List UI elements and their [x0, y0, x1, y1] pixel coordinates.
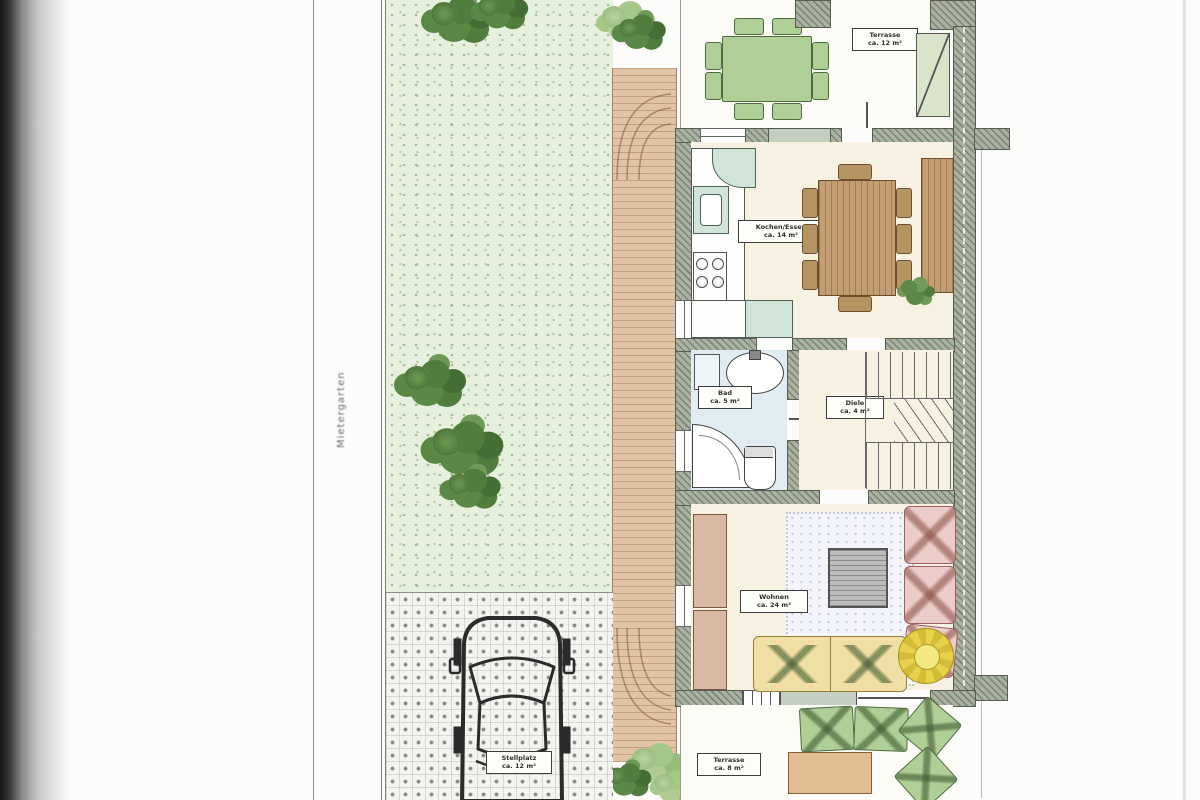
stair-winders: [894, 398, 954, 442]
tap-icon: [749, 350, 761, 360]
garden-bench: [916, 33, 950, 117]
lower-terrace-label: Terrasse ca. 8 m²: [697, 753, 761, 776]
dining-chair: [896, 188, 912, 218]
terrace-table: [788, 752, 872, 794]
stove-icon: [693, 252, 727, 306]
terrace-door: [858, 697, 928, 699]
dining-chair: [838, 164, 872, 180]
path-curve-lines: [611, 68, 678, 762]
burner-icon: [712, 276, 724, 288]
kitchen-counter: [691, 300, 749, 338]
terrace-chair: [705, 42, 722, 70]
dining-chair: [838, 296, 872, 312]
coffee-table: [828, 548, 888, 608]
bath-cabinet: [694, 354, 720, 390]
property-boundary-line: [313, 0, 314, 800]
site-plan: Mietergarten: [0, 0, 1200, 800]
terrace-chair: [894, 746, 959, 800]
sideboard: [921, 158, 954, 293]
kitchen-sink: [693, 186, 729, 234]
toilet-icon: [744, 446, 776, 490]
flower-core: [914, 644, 941, 671]
tree-icon: [448, 474, 470, 494]
stair-treads-upper: [866, 352, 954, 399]
terrace-chair: [812, 72, 829, 100]
flower-plant-icon: [898, 628, 954, 684]
burner-icon: [696, 258, 708, 270]
plant-icon: [901, 280, 917, 295]
living-room: Wohnen ca. 24 m²: [691, 504, 953, 690]
sofa: [753, 636, 907, 692]
toilet-tank: [745, 447, 773, 458]
hallway: Diele ca. 4 m²: [799, 350, 953, 490]
party-wall-axis: [963, 27, 965, 706]
terrace-chair: [812, 42, 829, 70]
shower-icon: [692, 424, 752, 488]
bathroom: Bad ca. 5 m²: [691, 350, 787, 490]
burner-icon: [712, 258, 724, 270]
dining-chair: [896, 224, 912, 254]
bush-icon: [632, 748, 656, 770]
sofa-seat-divider: [830, 637, 831, 691]
bath-label: Bad ca. 5 m²: [698, 386, 752, 409]
wall-pier: [795, 0, 831, 28]
garden-boundary-line: [381, 0, 382, 800]
scan-edge-shadow: [0, 0, 70, 800]
boundary-vertical-label: Mietergarten: [336, 328, 354, 448]
brick-path: [612, 68, 677, 762]
sofa-cushion: [838, 645, 898, 683]
party-wall: [953, 26, 976, 707]
terrace-chair: [772, 103, 802, 120]
terrace-chair: [734, 103, 764, 120]
scanned-floor-plan-page: Mietergarten: [0, 0, 1200, 800]
garden-area: [385, 0, 613, 592]
staircase: [865, 352, 954, 488]
tree-icon: [431, 2, 457, 26]
bush-icon: [619, 19, 639, 37]
parking-area: Stellplatz ca. 12 m²: [385, 592, 613, 800]
living-label: Wohnen ca. 24 m²: [740, 590, 808, 613]
entrance-door: [866, 102, 868, 128]
dining-table: [818, 180, 896, 296]
stair-treads-lower: [866, 442, 954, 489]
kitchen-dining-room: Kochen/Essen ca. 14 m²: [691, 142, 953, 338]
sofa-cushion: [762, 645, 822, 683]
tree-icon: [479, 0, 500, 16]
sink-basin-icon: [700, 194, 722, 226]
kitchen-unit: [745, 300, 793, 338]
armchair: [904, 566, 956, 624]
dining-chair: [802, 260, 818, 290]
lounge-chair: [799, 706, 855, 753]
cabinet: [693, 514, 727, 608]
tree-icon: [404, 366, 430, 390]
terrace-dining-table: [722, 36, 812, 102]
cabinet: [693, 610, 727, 690]
dining-chair: [802, 224, 818, 254]
armchair: [904, 506, 956, 564]
tree-icon: [432, 428, 462, 456]
bush-icon: [654, 774, 673, 792]
terrace-chair: [734, 18, 764, 35]
parking-label: Stellplatz ca. 12 m²: [486, 751, 552, 774]
dining-chair: [802, 188, 818, 218]
wall-stub: [974, 128, 1010, 150]
lower-terrace: Terrasse ca. 8 m²: [681, 705, 953, 800]
upper-terrace-label: Terrasse ca. 12 m²: [852, 28, 918, 51]
page-edge-line: [1183, 0, 1186, 800]
wall-stub: [974, 675, 1008, 701]
terrace-chair: [705, 72, 722, 100]
burner-icon: [696, 276, 708, 288]
shower-tray: [699, 435, 740, 480]
